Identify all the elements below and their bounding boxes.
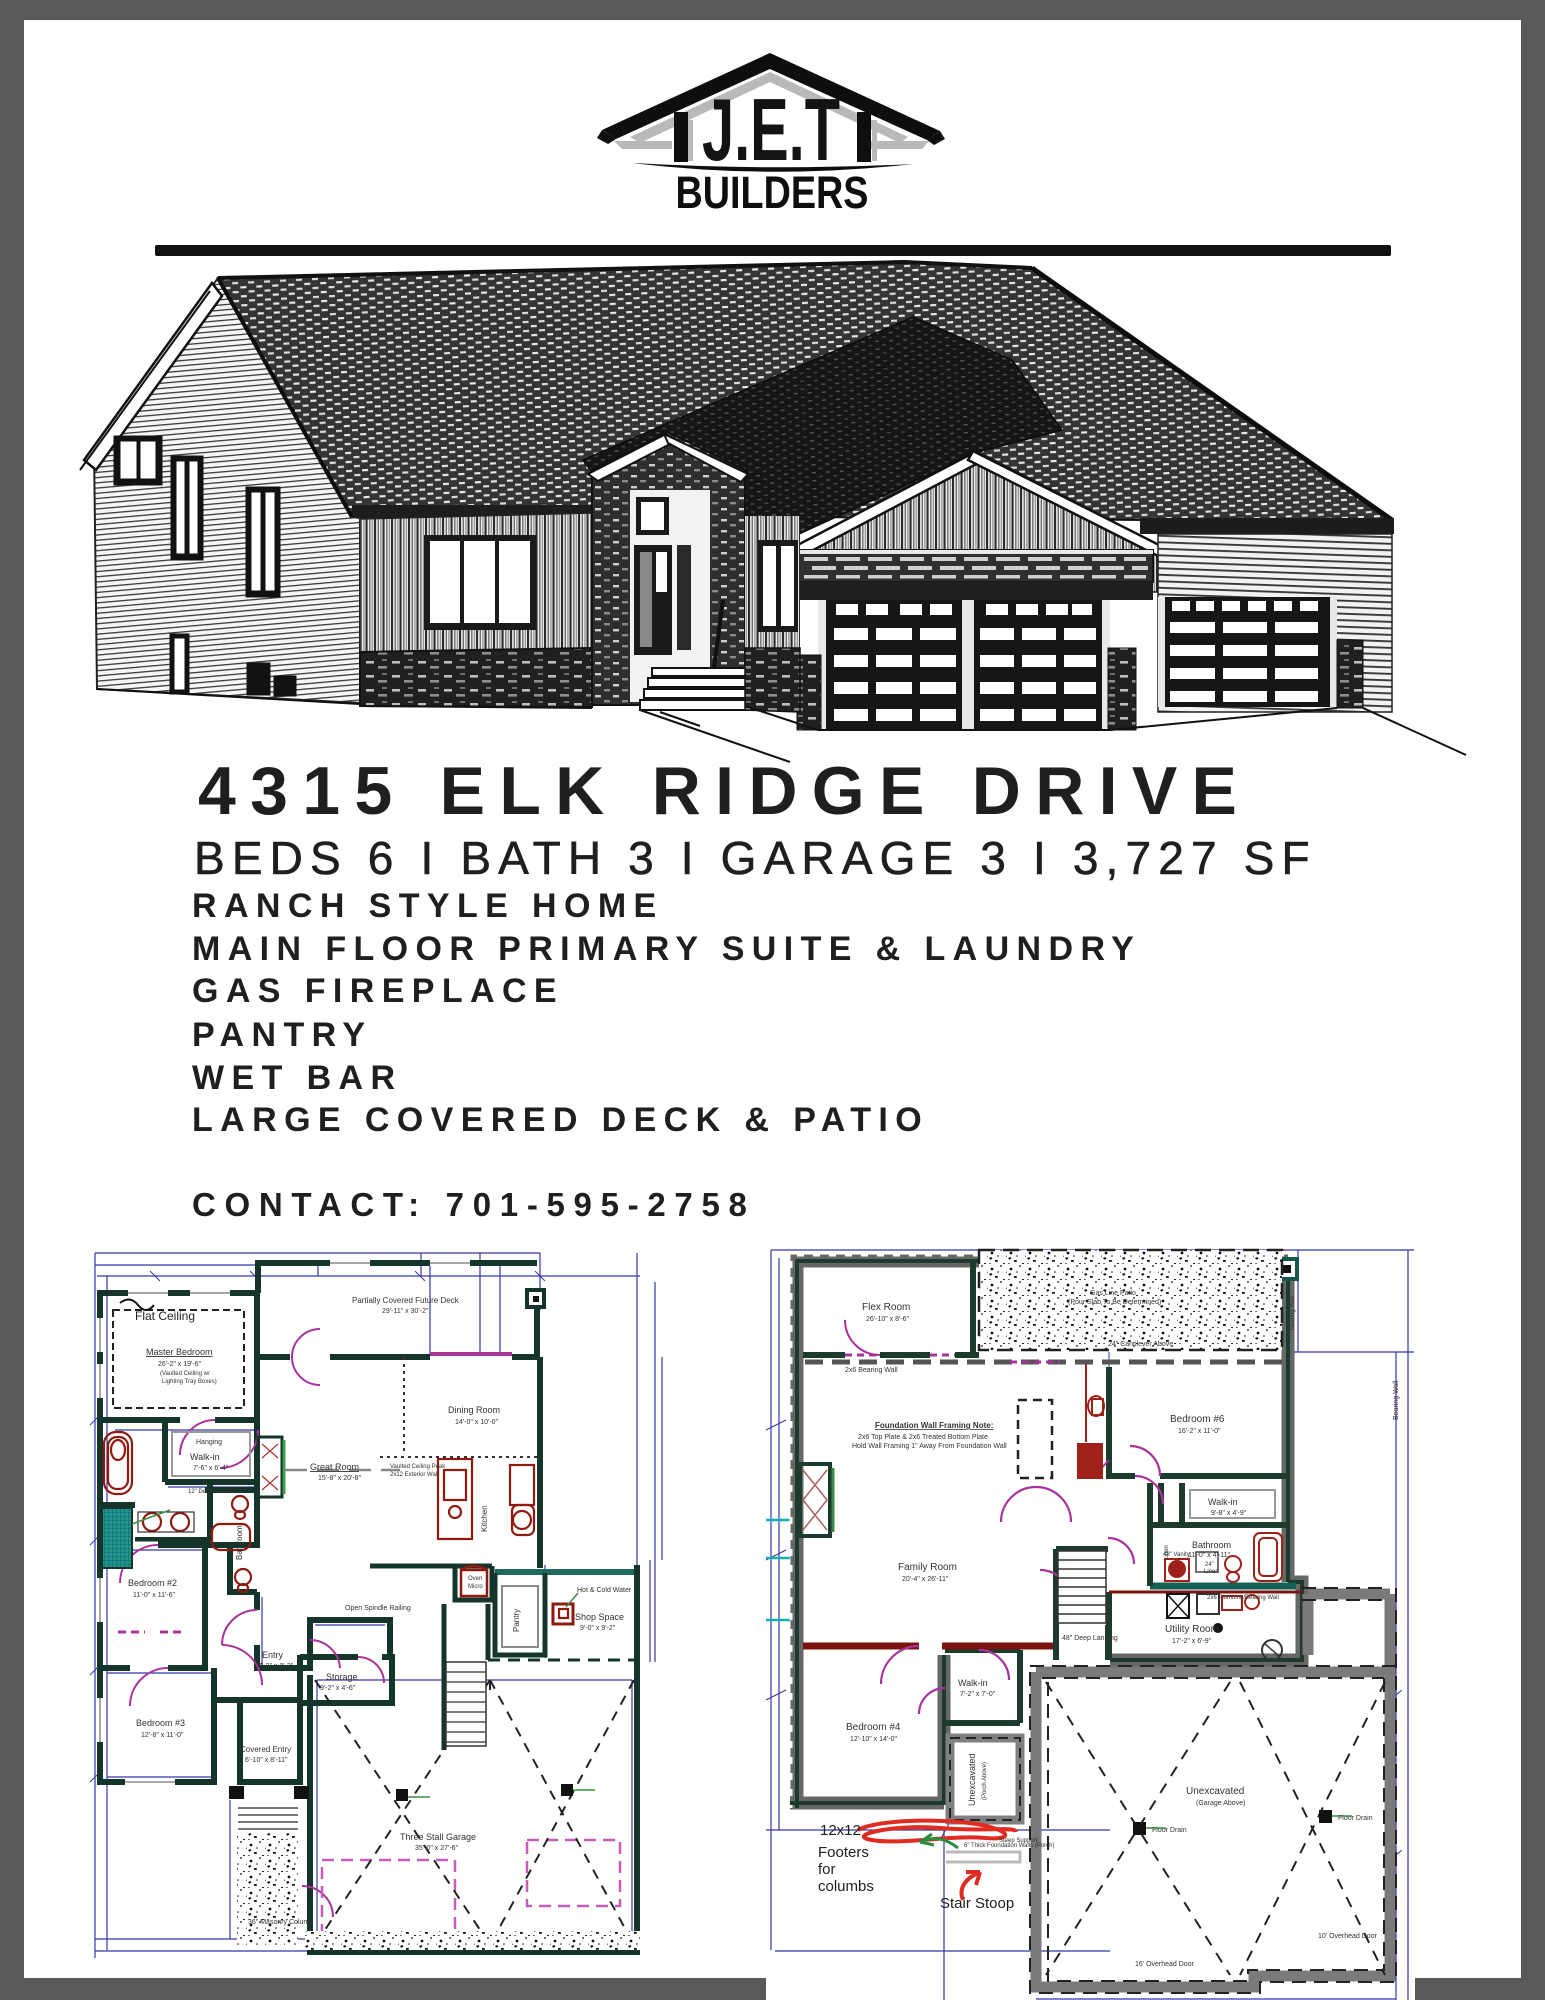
svg-text:24": 24" [1205,1562,1214,1568]
svg-text:Unexcavated: Unexcavated [967,1753,977,1806]
svg-text:Covered Entry: Covered Entry [240,1745,291,1754]
svg-text:Master Bedroom: Master Bedroom [146,1347,213,1357]
svg-text:26'-10" x 8'-6": 26'-10" x 8'-6" [866,1316,910,1323]
svg-text:Great Room: Great Room [310,1462,359,1472]
svg-text:11'-0" x 11'-6": 11'-0" x 11'-6" [133,1592,176,1599]
svg-text:Utility Room: Utility Room [1165,1624,1219,1635]
svg-text:2x6 Bearing Wall: 2x6 Bearing Wall [845,1367,898,1374]
svg-text:Dining Room: Dining Room [448,1405,500,1415]
svg-text:Hanging: Hanging [196,1439,222,1446]
svg-text:Linen: Linen [1204,1569,1219,1575]
svg-text:Foundation Wall Framing Note:: Foundation Wall Framing Note: [875,1421,993,1430]
svg-text:Flex Room: Flex Room [862,1302,910,1313]
svg-text:for: for [818,1861,836,1878]
svg-text:Bedroom #4: Bedroom #4 [846,1722,901,1733]
svg-text:columbs: columbs [818,1878,874,1895]
svg-text:Bearing Wall: Bearing Wall [1393,1380,1400,1420]
svg-text:Walk-in: Walk-in [958,1678,988,1688]
svg-text:Pantry: Pantry [512,1609,521,1632]
svg-text:17'-2" x 6'-9": 17'-2" x 6'-9" [1172,1638,1212,1645]
svg-text:Kitchen: Kitchen [480,1505,489,1532]
svg-text:Walk-in: Walk-in [190,1452,220,1462]
svg-text:7'-2" x 7'-0": 7'-2" x 7'-0" [960,1691,996,1698]
svg-text:9'-8" x 4'-9": 9'-8" x 4'-9" [1211,1510,1247,1517]
svg-text:7'-6" x 6'-4": 7'-6" x 6'-4" [193,1465,229,1472]
svg-text:Vaulted Ceiling Peak: Vaulted Ceiling Peak [390,1464,446,1470]
svg-text:Partially Covered Future Deck: Partially Covered Future Deck [352,1296,460,1305]
svg-text:(Pour Slab To Be Determined): (Pour Slab To Be Determined) [1068,1299,1161,1306]
svg-text:Walk-in: Walk-in [1208,1497,1238,1507]
svg-text:Flat Ceiling: Flat Ceiling [135,1309,195,1323]
svg-text:48" Vanity: 48" Vanity [1163,1552,1190,1558]
svg-text:9'-2" x 4'-6": 9'-2" x 4'-6" [320,1685,356,1692]
svg-text:Bearing Wall: Bearing Wall [1290,1296,1296,1330]
svg-text:20'-4" x 26'-11": 20'-4" x 26'-11" [902,1576,949,1583]
svg-text:(Vaulted Ceiling w/: (Vaulted Ceiling w/ [160,1371,210,1377]
svg-text:7'-2" x 8'-3": 7'-2" x 8'-3" [258,1663,294,1670]
svg-text:Unexcavated: Unexcavated [1186,1786,1244,1797]
svg-text:(Porch Above): (Porch Above) [982,1762,988,1800]
svg-text:Lighting Tray Boxes): Lighting Tray Boxes) [162,1379,217,1385]
svg-text:10' Overhead Door: 10' Overhead Door [1318,1933,1378,1940]
svg-text:Footers: Footers [818,1844,869,1861]
svg-text:Bathroom: Bathroom [1192,1540,1231,1550]
svg-text:2x6 Top Plate & 2x6 Treated Bo: 2x6 Top Plate & 2x6 Treated Bottom Plate [858,1434,988,1441]
svg-text:Three Stall Garage: Three Stall Garage [400,1832,476,1842]
svg-text:Bedroom #2: Bedroom #2 [128,1578,177,1588]
svg-text:12x12: 12x12 [820,1822,861,1839]
svg-text:Gas Line Patio: Gas Line Patio [1090,1290,1136,1297]
svg-text:16' Overhead Door: 16' Overhead Door [1135,1961,1195,1968]
svg-text:Bedroom #3: Bedroom #3 [136,1718,185,1728]
svg-text:Bedroom #6: Bedroom #6 [1170,1414,1225,1425]
svg-text:(Garage Above): (Garage Above) [1196,1800,1245,1807]
svg-text:Shop Space: Shop Space [575,1612,624,1622]
svg-text:Open Spindle Railing: Open Spindle Railing [345,1605,411,1612]
svg-text:Stair Stoop: Stair Stoop [940,1895,1014,1912]
svg-text:16'-2" x 11'-0": 16'-2" x 11'-0" [1178,1428,1221,1435]
svg-text:15'-8" x 20'-8": 15'-8" x 20'-8" [318,1475,362,1482]
svg-text:12" Deep Cubbies: 12" Deep Cubbies [188,1489,237,1495]
svg-text:11'-0" x 4'-11": 11'-0" x 4'-11" [1188,1552,1231,1559]
svg-text:14'-0" x 10'-0": 14'-0" x 10'-0" [455,1419,499,1426]
svg-text:Storage: Storage [326,1672,358,1682]
svg-text:Micro: Micro [468,1584,483,1590]
svg-text:9'-0" x 9'-2": 9'-0" x 9'-2" [580,1625,616,1632]
svg-text:2x12 Exterior Wall: 2x12 Exterior Wall [390,1472,438,1478]
svg-text:Steep Support: Steep Support [999,1838,1038,1844]
svg-text:Hot & Cold Water: Hot & Cold Water [577,1587,632,1594]
svg-text:26'-2" x 19'-6": 26'-2" x 19'-6" [158,1361,202,1368]
svg-text:Hold Wall Framing 1" Away From: Hold Wall Framing 1" Away From Foundatio… [852,1443,1007,1450]
svg-text:2x6 Plumbing/Bearing Wall: 2x6 Plumbing/Bearing Wall [1207,1595,1279,1601]
svg-text:Oven: Oven [468,1576,482,1582]
svg-text:12'-8" x 11'-0": 12'-8" x 11'-0" [141,1732,184,1739]
svg-text:Entry: Entry [262,1650,284,1660]
svg-text:29'-11" x 30'-2": 29'-11" x 30'-2" [382,1308,429,1315]
svg-text:12'-10" x 14'-0": 12'-10" x 14'-0" [850,1736,897,1743]
svg-text:35'-0" x 27'-6": 35'-0" x 27'-6" [415,1845,459,1852]
svg-text:Family Room: Family Room [898,1562,957,1573]
svg-text:24" Cantilever Above: 24" Cantilever Above [1108,1341,1173,1348]
svg-text:48" Deep Landing: 48" Deep Landing [1062,1635,1118,1642]
svg-text:6'-10" x 8'-11": 6'-10" x 8'-11" [245,1757,288,1764]
svg-text:36" Masonry Column: 36" Masonry Column [248,1919,313,1926]
svg-text:Bathroom: Bathroom [235,1525,244,1560]
